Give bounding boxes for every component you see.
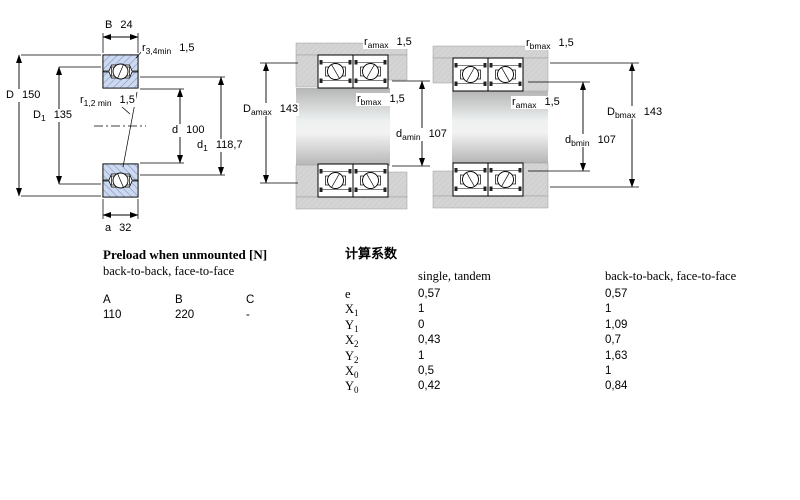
dimension-D — [19, 55, 101, 196]
factor-row-Y0: Y00,420,84 — [345, 379, 785, 394]
housing-band — [296, 197, 407, 209]
dim-label-D1: D1135 — [32, 109, 73, 122]
factor-label: Y0 — [345, 379, 418, 395]
factor-value-single-tandem: 1 — [418, 302, 605, 318]
factors-header-back-to-back: back-to-back, face-to-face — [605, 269, 785, 283]
dim-label-r34min: r3,4min1,5 — [141, 42, 195, 55]
face-to-face-arrangement-diagram — [433, 46, 639, 208]
factor-row-Y1: Y101,09 — [345, 318, 785, 333]
factor-row-e: e0,570,57 — [345, 287, 785, 302]
dimension-B — [103, 33, 138, 53]
factor-value-back-to-back: 1,63 — [605, 349, 785, 365]
dimension-Damax — [260, 63, 298, 183]
dim-label-r12min: r1,2 min1,5 — [79, 94, 136, 107]
factors-header-single-tandem: single, tandem — [418, 269, 605, 283]
factors-header-spacer — [345, 269, 418, 283]
dim-label-B: B24 — [104, 19, 134, 32]
preload-title: Preload when unmounted [N] — [103, 247, 333, 262]
dim-label-ramax-m: ramax1,5 — [363, 36, 413, 49]
factor-row-Y2: Y211,63 — [345, 349, 785, 364]
dim-label-Dbmax: Dbmax143 — [606, 106, 663, 119]
factors-header-row: single, tandem back-to-back, face-to-fac… — [345, 269, 785, 283]
factor-label: Y2 — [345, 349, 418, 365]
dim-label-a: a32 — [104, 222, 132, 235]
dim-label-D: D150 — [5, 89, 41, 102]
preload-table: Preload when unmounted [N] back-to-back,… — [103, 247, 333, 322]
preload-value-row: 110220- — [103, 308, 333, 322]
factor-row-X0: X00,51 — [345, 364, 785, 379]
factor-label: X2 — [345, 333, 418, 349]
factor-label: e — [345, 287, 418, 302]
factor-label: X1 — [345, 302, 418, 318]
preload-value-B: 220 — [175, 308, 246, 322]
factor-value-back-to-back: 1 — [605, 364, 785, 380]
factor-value-back-to-back: 0,57 — [605, 287, 785, 302]
dim-label-rbmax-r: rbmax1,5 — [525, 37, 575, 50]
preload-header-C: C — [246, 293, 333, 307]
factor-row-X2: X20,430,7 — [345, 333, 785, 348]
bearing-datasheet: B24r3,4min1,5D150D1135r1,2 min1,5d100d11… — [0, 0, 800, 500]
calculation-factors-table: 计算系数 single, tandem back-to-back, face-t… — [345, 247, 785, 395]
factor-value-single-tandem: 1 — [418, 349, 605, 365]
preload-value-A: 110 — [103, 308, 175, 322]
dim-label-d: d100 — [171, 124, 205, 137]
factor-label: Y1 — [345, 318, 418, 334]
dimension-D1 — [59, 67, 101, 184]
preload-header-A: A — [103, 293, 175, 307]
preload-header-B: B — [175, 293, 246, 307]
dim-label-rbmax-m: rbmax1,5 — [356, 93, 406, 106]
dim-label-damin: damin107 — [395, 128, 448, 141]
factor-value-back-to-back: 0,84 — [605, 379, 785, 395]
factor-label: X0 — [345, 364, 418, 380]
dim-label-Damax: Damax143 — [242, 103, 299, 116]
preload-header-row: ABC — [103, 293, 333, 307]
factor-value-single-tandem: 0,5 — [418, 364, 605, 380]
dim-label-d1: d1118,7 — [196, 139, 244, 152]
dim-label-ramax-r: ramax1,5 — [511, 96, 561, 109]
factor-value-single-tandem: 0,42 — [418, 379, 605, 395]
factor-value-back-to-back: 1 — [605, 302, 785, 318]
factor-value-back-to-back: 0,7 — [605, 333, 785, 349]
r12-leader-line — [122, 107, 130, 114]
housing-band — [433, 196, 548, 208]
factor-value-single-tandem: 0,43 — [418, 333, 605, 349]
factor-value-single-tandem: 0 — [418, 318, 605, 334]
dimension-a — [103, 199, 138, 219]
back-to-back-arrangement-diagram — [260, 43, 430, 209]
factor-value-single-tandem: 0,57 — [418, 287, 605, 302]
dim-label-dbmin: dbmin107 — [564, 134, 617, 147]
factors-title: 计算系数 — [345, 247, 785, 262]
dimension-Dbmax — [550, 63, 639, 187]
factor-row-X1: X111 — [345, 302, 785, 317]
preload-value-C: - — [246, 308, 333, 322]
preload-subtitle: back-to-back, face-to-face — [103, 264, 333, 278]
factor-value-back-to-back: 1,09 — [605, 318, 785, 334]
factors-rows: e0,570,57X111Y101,09X20,430,7Y211,63X00,… — [345, 287, 785, 395]
